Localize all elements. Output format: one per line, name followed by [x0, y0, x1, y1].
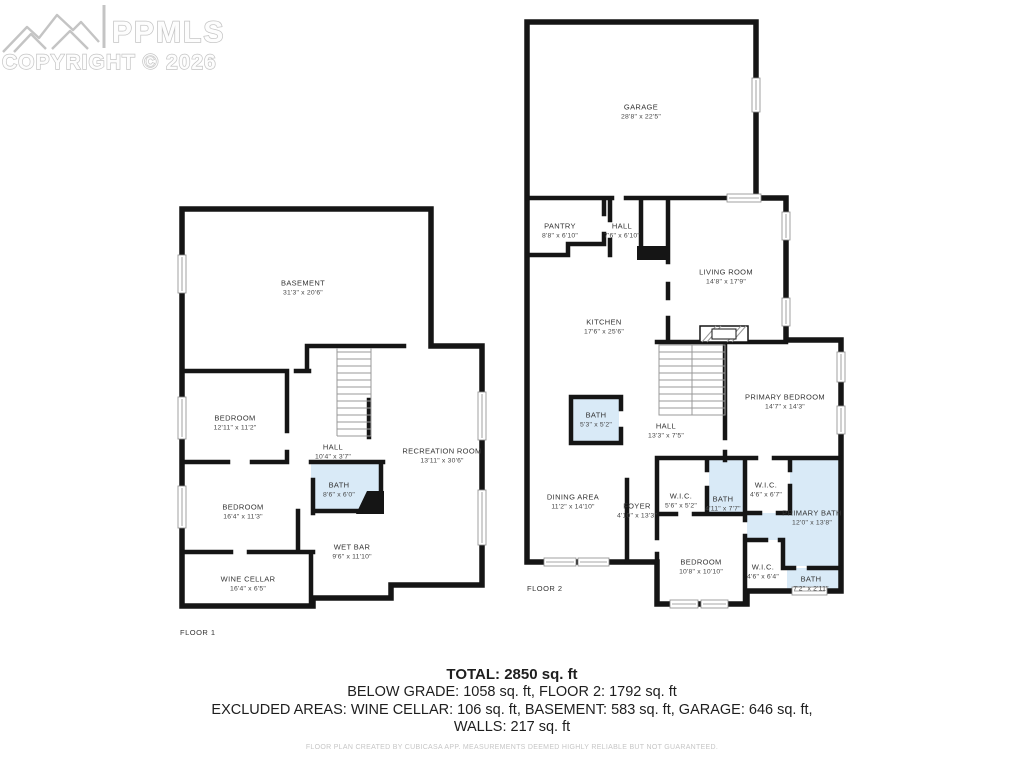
room-label-bath-f2: BATH5'3" x 5'2" — [580, 411, 612, 429]
floor1-plan — [160, 192, 505, 652]
room-label-kitchen: KITCHEN17'6" x 25'6" — [584, 318, 624, 336]
room-label-bath-small: BATH7'2" x 2'11" — [793, 575, 828, 593]
mountain-logo-icon — [3, 5, 104, 52]
total-area: TOTAL: 2850 sq. ft — [0, 666, 1024, 684]
fireplace-icon — [700, 326, 748, 342]
room-label-bath-hall: BATH4'11" x 7'7" — [705, 495, 740, 513]
room-label-pantry: PANTRY8'8" x 6'10" — [542, 222, 578, 240]
room-label-living-room: LIVING ROOM14'8" x 17'9" — [699, 268, 753, 286]
room-label-recreation-room: RECREATION ROOM13'11" x 30'6" — [402, 447, 481, 465]
room-label-wic-2: W.I.C.4'6" x 6'7" — [750, 481, 782, 499]
room-label-foyer: FOYER4'10" x 13'3" — [617, 502, 657, 520]
room-label-bedroom-1: BEDROOM12'11" x 11'2" — [214, 414, 257, 432]
room-label-dining-area: DINING AREA11'2" x 14'10" — [547, 493, 599, 511]
room-label-bedroom-f2: BEDROOM10'8" x 10'10" — [679, 558, 723, 576]
floor2-tag: FLOOR 2 — [527, 584, 563, 593]
room-label-hall-f1: HALL10'4" x 3'7" — [315, 443, 351, 461]
disclaimer-text: FLOOR PLAN CREATED BY CUBICASA APP. MEAS… — [0, 744, 1024, 751]
watermark-copyright: COPYRIGHT © 2026 — [2, 51, 217, 74]
area-line-2: BELOW GRADE: 1058 sq. ft, FLOOR 2: 1792 … — [0, 684, 1024, 702]
room-label-basement: BASEMENT31'3" x 20'6" — [281, 279, 325, 297]
room-label-primary-bath: PRIMARY BATH12'0" x 13'8" — [782, 509, 842, 527]
room-label-primary-bedroom: PRIMARY BEDROOM14'7" x 14'3" — [745, 393, 825, 411]
room-label-hall-f2b: HALL13'3" x 7'5" — [648, 422, 684, 440]
room-label-bedroom-2: BEDROOM16'4" x 11'3" — [222, 503, 263, 521]
room-label-wine-cellar: WINE CELLAR16'4" x 6'5" — [221, 575, 276, 593]
room-label-hall-f2a: HALL7'6" x 6'10" — [604, 222, 640, 240]
area-line-4: WALLS: 217 sq. ft — [0, 719, 1024, 737]
room-label-garage: GARAGE28'8" x 22'5" — [621, 103, 661, 121]
floor1-tag: FLOOR 1 — [180, 628, 216, 637]
room-label-wet-bar: WET BAR9'6" x 11'10" — [332, 543, 371, 561]
room-label-bath-f1: BATH8'6" x 6'0" — [323, 481, 355, 499]
area-line-3: EXCLUDED AREAS: WINE CELLAR: 106 sq. ft,… — [0, 702, 1024, 720]
floor2-stairs-icon — [659, 345, 725, 415]
room-label-wic-1: W.I.C.5'6" x 5'2" — [665, 492, 697, 510]
watermark: PPMLS COPYRIGHT © 2026 — [0, 0, 240, 80]
area-summary: TOTAL: 2850 sq. ft BELOW GRADE: 1058 sq.… — [0, 666, 1024, 737]
floor1-stairs-icon — [337, 348, 371, 436]
room-label-wic-3: W.I.C.4'6" x 6'4" — [747, 563, 779, 581]
watermark-brand: PPMLS — [112, 16, 225, 49]
floorplan-page: PPMLS COPYRIGHT © 2026 — [0, 0, 1024, 767]
